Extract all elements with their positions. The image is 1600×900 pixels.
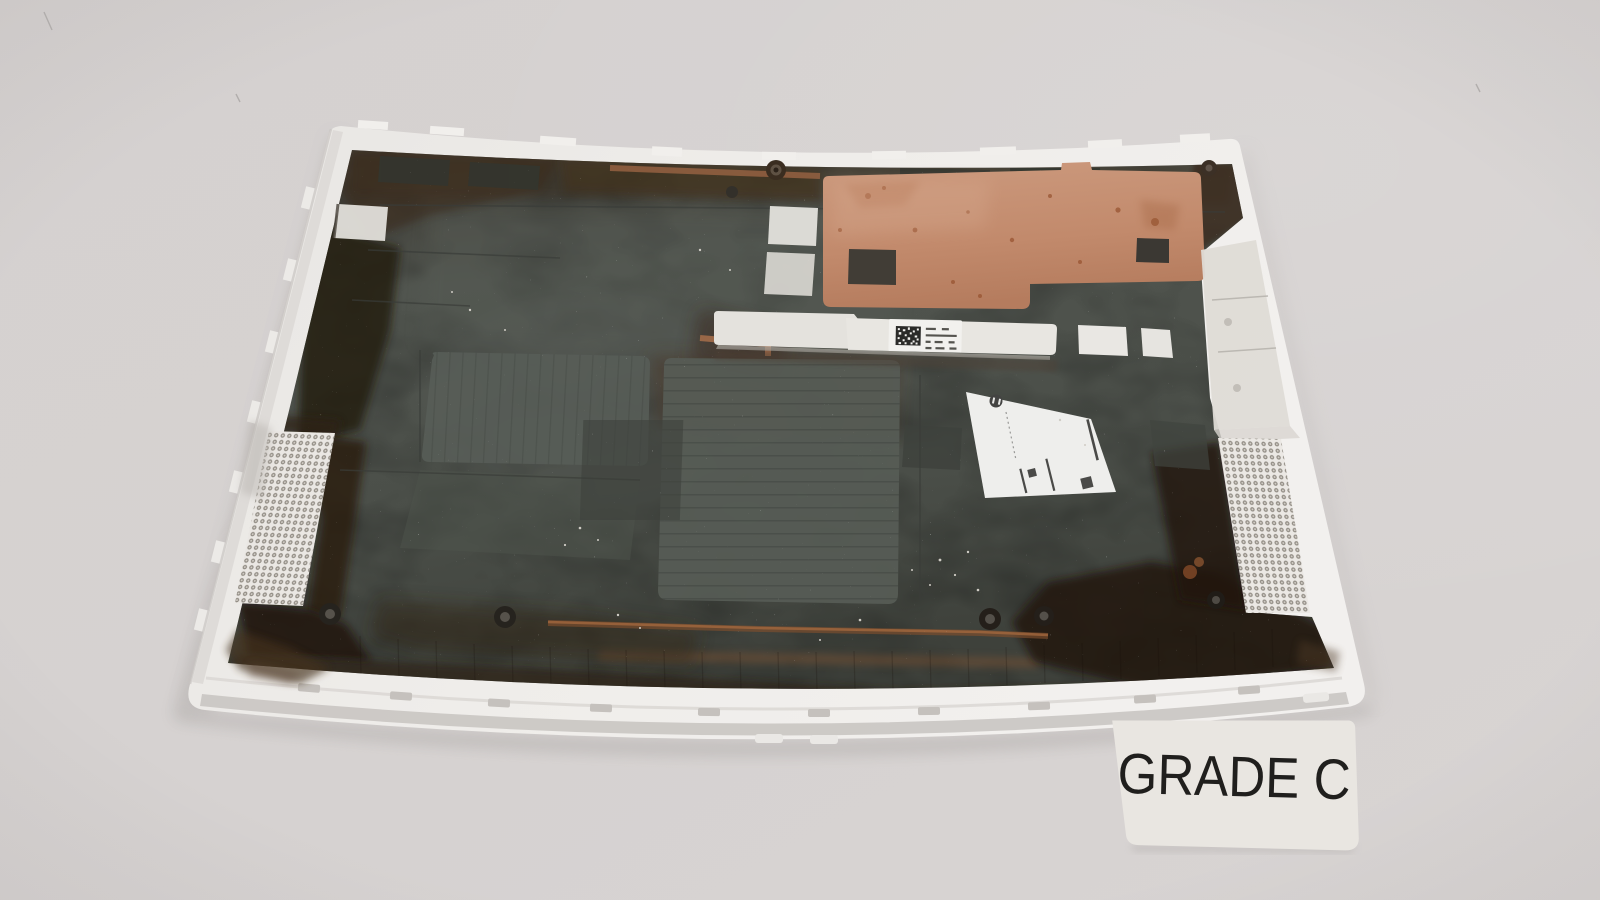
svg-text:GRADE C: GRADE C [1117, 742, 1352, 812]
